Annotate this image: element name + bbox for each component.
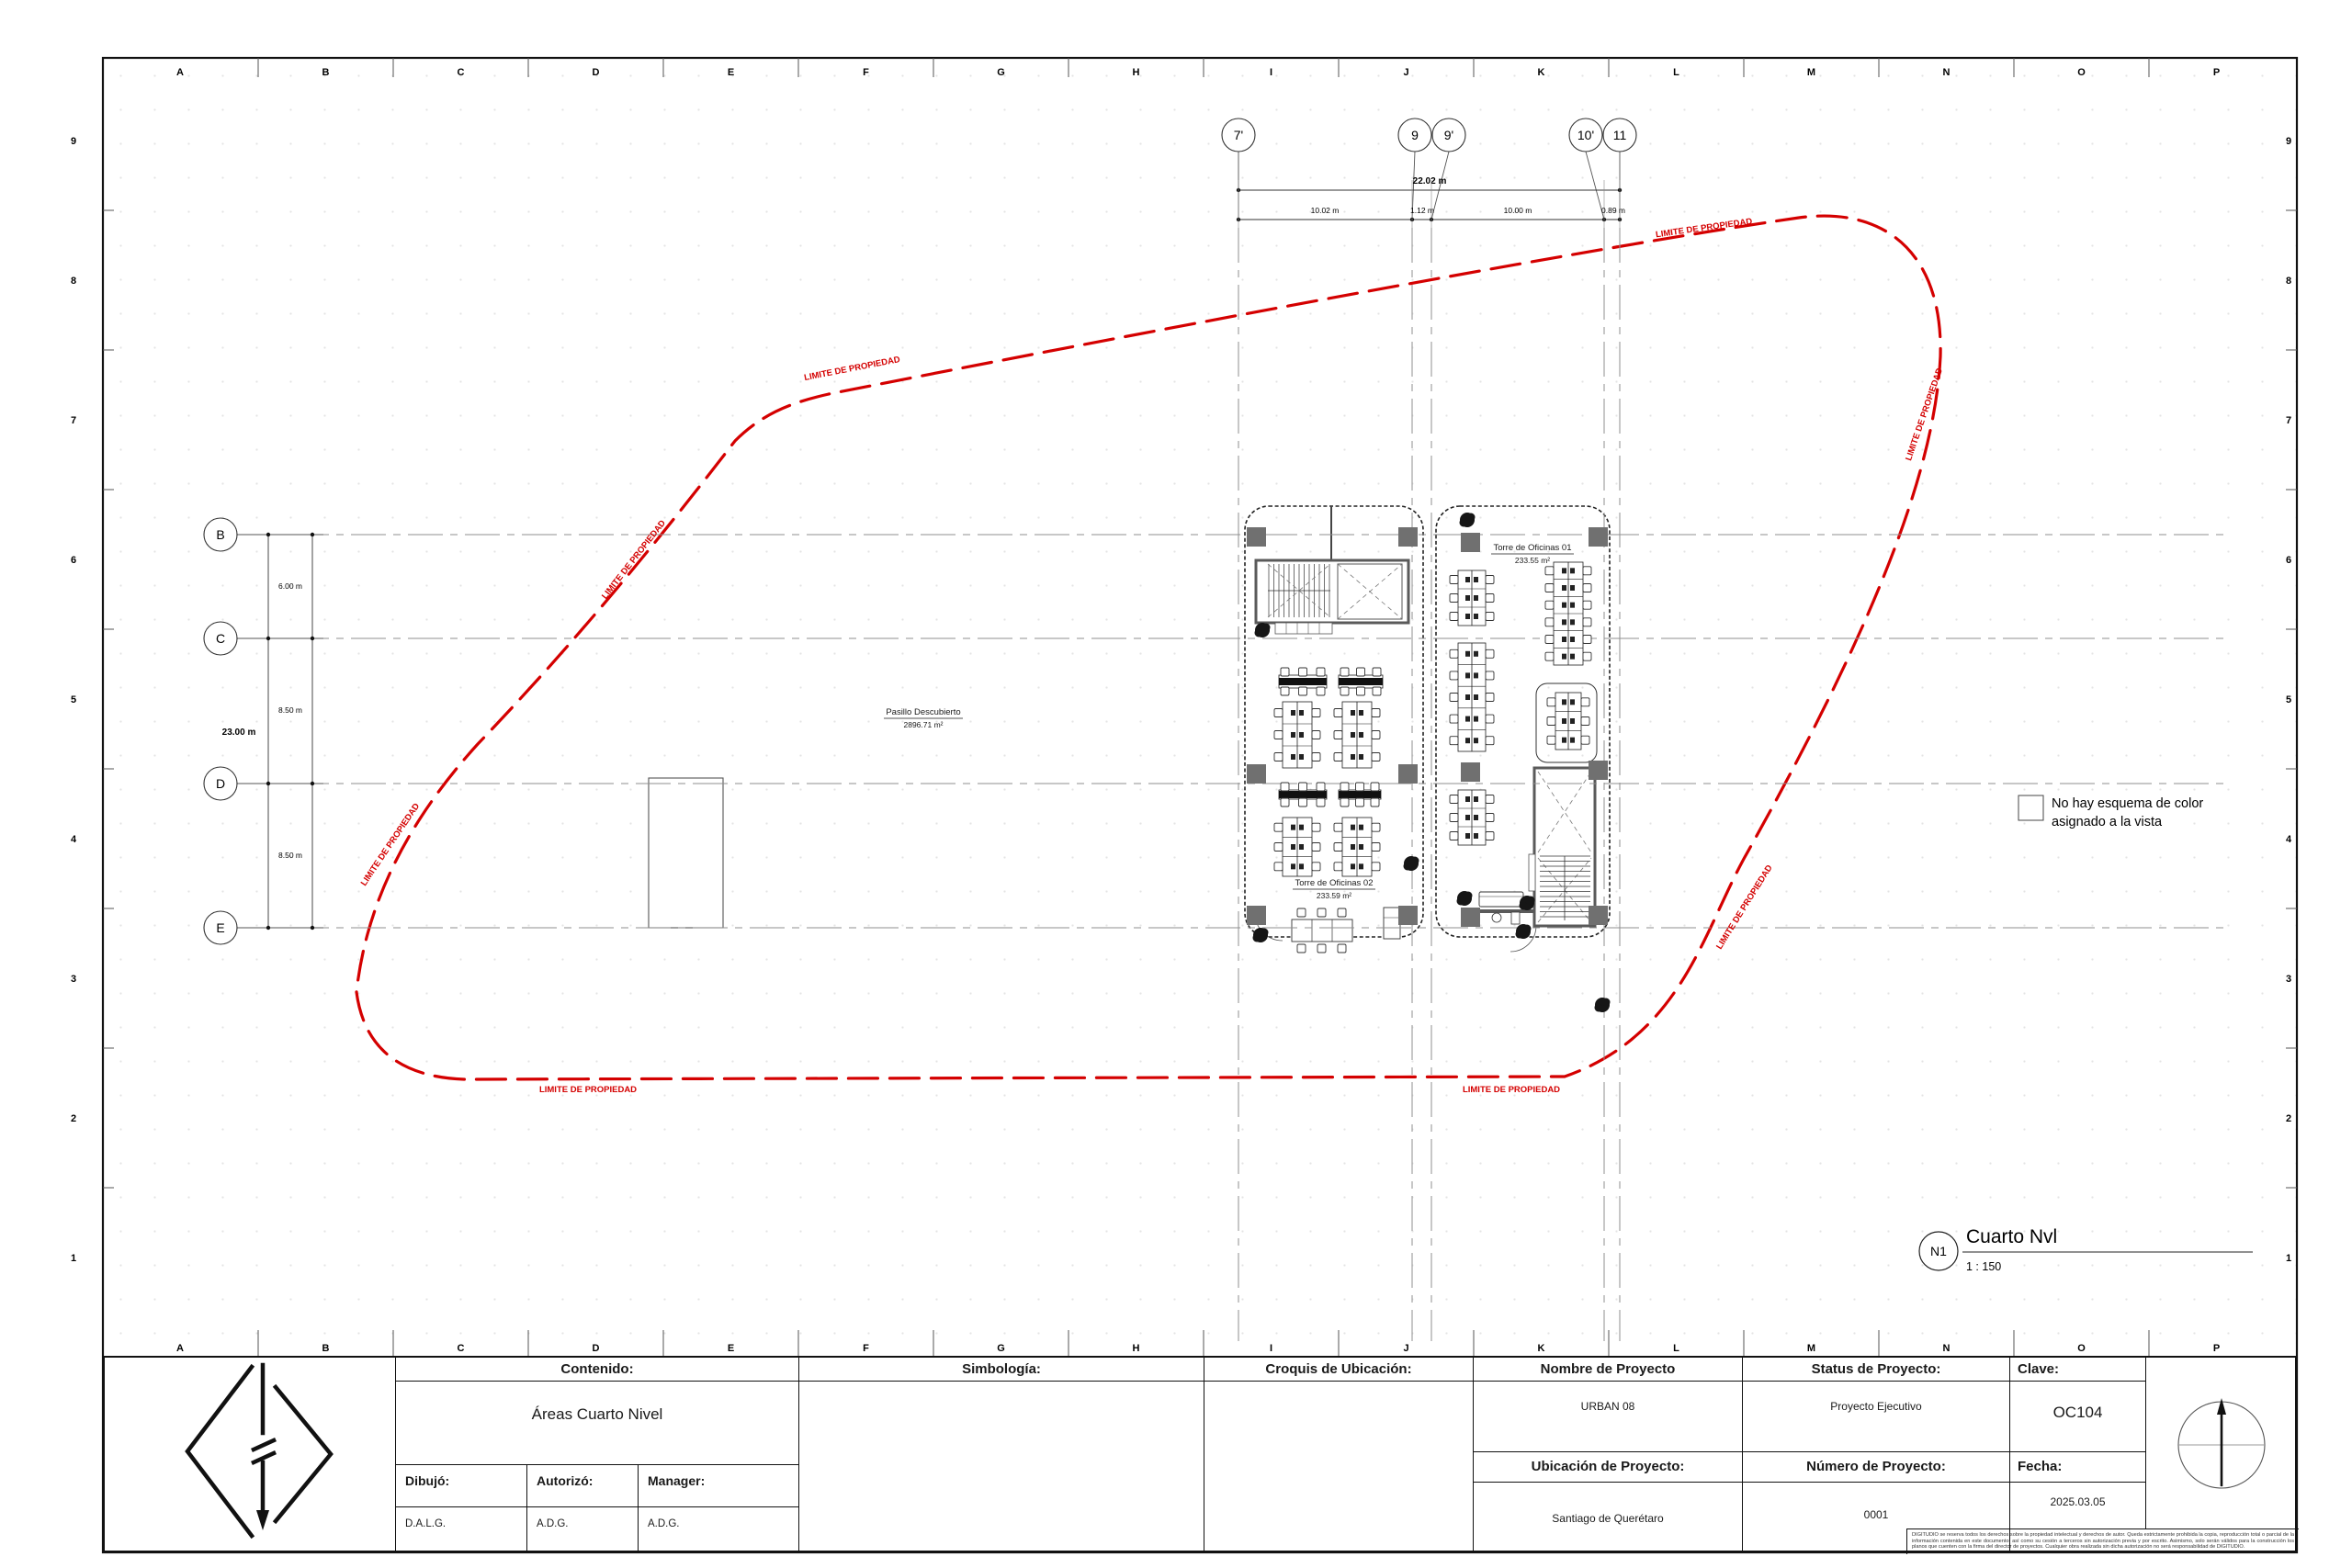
grid-bubble-label: 9' [1444, 128, 1453, 142]
dimension-text: 10.00 m [1504, 206, 1532, 215]
desk-cluster [1545, 562, 1591, 665]
desk-cluster [1274, 818, 1320, 876]
ruler-row-number: 8 [71, 276, 76, 287]
ruler-column-letter: L [1673, 1343, 1679, 1354]
desk-cluster [1339, 668, 1383, 695]
grid-bubble-label: E [216, 920, 224, 935]
dimension-text: 8.50 m [278, 851, 302, 860]
drawing-sheet: AABBCCDDEEFFGGHHIIJJKKLLMMNNOOPP99887766… [0, 0, 2352, 1568]
copyright-disclaimer: DIGITUDIO se reserva todos los derechos … [1906, 1529, 2299, 1554]
north-arrow-icon [2146, 1358, 2297, 1529]
status-label: Status de Proyecto: [1743, 1358, 2009, 1382]
grid-bubble-label: 11 [1613, 128, 1627, 142]
nombre-value: URBAN 08 [1474, 1382, 1742, 1451]
ruler-row-number: 7 [71, 415, 76, 426]
tree-icon [1516, 924, 1532, 939]
contenido-label: Contenido: [396, 1358, 798, 1382]
ruler-column-letter: J [1403, 1343, 1408, 1354]
pasillo-label: Pasillo Descubierto [886, 707, 960, 717]
ruler-row-number: 2 [2286, 1113, 2291, 1124]
desk-cluster [1334, 702, 1380, 768]
desk-cluster [1450, 570, 1494, 626]
desk-cluster [1450, 790, 1494, 845]
ruler-column-letter: G [997, 1343, 1005, 1354]
logo-cell [105, 1358, 395, 1551]
title-block: Contenido: Áreas Cuarto Nivel Dibujó: Au… [103, 1356, 2297, 1552]
structural-column [1589, 761, 1608, 780]
ruler-column-letter: B [322, 67, 330, 78]
ruler-row-number: 4 [71, 834, 77, 845]
desk-cluster [1547, 693, 1589, 750]
ruler-column-letter: A [176, 67, 184, 78]
property-limit-label: LIMITE DE PROPIEDAD [1655, 217, 1753, 241]
property-limit-label: LIMITE DE PROPIEDAD [539, 1085, 637, 1095]
ruler-row-number: 6 [71, 555, 76, 566]
desk-cluster [1339, 783, 1381, 807]
grid-bubble-label: 7' [1234, 128, 1243, 142]
dimension-text: 10.02 m [1311, 206, 1340, 215]
ruler-column-letter: K [1538, 1343, 1545, 1354]
property-limit-boundary [356, 216, 1940, 1079]
north-arrow-cell [2145, 1358, 2297, 1529]
ruler-column-letter: M [1807, 1343, 1815, 1354]
ruler-row-number: 3 [2286, 974, 2291, 985]
ruler-row-number: 9 [2286, 136, 2291, 147]
structural-column [1589, 527, 1608, 547]
croquis-label: Croquis de Ubicación: [1204, 1358, 1473, 1382]
ruler-column-letter: C [458, 67, 465, 78]
grid-bubble-label: C [216, 631, 225, 646]
ruler-column-letter: P [2213, 1343, 2220, 1354]
ruler-column-letter: B [322, 1343, 330, 1354]
ruler-column-letter: P [2213, 67, 2220, 78]
property-limit-label: LIMITE DE PROPIEDAD [1714, 863, 1775, 952]
structural-column [1398, 906, 1418, 925]
structural-column [1461, 533, 1480, 552]
ruler-column-letter: E [728, 67, 734, 78]
ruler-column-letter: K [1538, 67, 1545, 78]
tree-icon [1460, 513, 1476, 527]
ruler-column-letter: C [458, 1343, 465, 1354]
structure-outline [649, 778, 723, 928]
ubicacion-label: Ubicación de Proyecto: [1474, 1451, 1742, 1483]
dimension-text: 6.00 m [278, 581, 302, 591]
tree-icon [1253, 928, 1269, 942]
ubicacion-value: Santiago de Querétaro [1474, 1483, 1742, 1552]
grid-bubble-label: 9 [1411, 128, 1419, 142]
ruler-column-letter: E [728, 1343, 734, 1354]
desk-cluster [1334, 818, 1380, 876]
ruler-row-number: 7 [2286, 415, 2291, 426]
structural-column [1247, 764, 1266, 784]
ruler-row-number: 5 [71, 694, 76, 705]
tree-icon [1457, 891, 1473, 906]
nombre-label: Nombre de Proyecto [1474, 1358, 1742, 1382]
clave-value: OC104 [2010, 1382, 2145, 1451]
ruler-row-number: 3 [71, 974, 76, 985]
ruler-column-letter: O [2077, 67, 2086, 78]
contenido-cell: Contenido: Áreas Cuarto Nivel Dibujó: Au… [395, 1358, 798, 1551]
clave-cell: Clave: OC104 Fecha: 2025.03.05 [2009, 1358, 2145, 1551]
structural-column [1589, 906, 1608, 925]
view-tag: N1 [1930, 1244, 1947, 1258]
legend-swatch [2018, 795, 2043, 820]
property-limit-label: LIMITE DE PROPIEDAD [1904, 367, 1945, 462]
ruler-row-number: 8 [2286, 276, 2291, 287]
ruler-row-number: 2 [71, 1113, 76, 1124]
property-limit-label: LIMITE DE PROPIEDAD [1463, 1085, 1560, 1095]
ruler-column-letter: A [176, 1343, 184, 1354]
autorizo-label: Autorizó: [526, 1465, 638, 1506]
grid-bubble-label: 10' [1577, 128, 1594, 142]
property-limit-label: LIMITE DE PROPIEDAD [600, 518, 668, 601]
stair-core-tower-01 [1529, 768, 1595, 926]
desk-cluster [1450, 643, 1494, 751]
desk-cluster [1274, 702, 1320, 768]
ruler-column-letter: H [1133, 1343, 1140, 1354]
torre-01-label: Torre de Oficinas 01 [1493, 543, 1571, 553]
clave-label: Clave: [2010, 1358, 2145, 1382]
torre-02-label: Torre de Oficinas 02 [1295, 878, 1373, 888]
dibujo-label: Dibujó: [396, 1465, 526, 1506]
structural-column [1461, 762, 1480, 782]
structural-column [1398, 527, 1418, 547]
structural-column [1461, 908, 1480, 927]
ruler-column-letter: N [1943, 1343, 1951, 1354]
legend-text-line2: asignado a la vista [2052, 815, 2163, 829]
ruler-row-number: 9 [71, 136, 76, 147]
status-proyecto-cell: Status de Proyecto: Proyecto Ejecutivo N… [1742, 1358, 2009, 1551]
ruler-column-letter: L [1673, 67, 1679, 78]
autorizo-value: A.D.G. [526, 1507, 638, 1552]
tree-icon [1595, 998, 1611, 1012]
ruler-column-letter: G [997, 67, 1005, 78]
ruler-row-number: 6 [2286, 555, 2291, 566]
dimension-text: 0.89 m [1601, 206, 1625, 215]
meeting-area-tower-02 [1255, 908, 1400, 953]
view-title: N1 Cuarto Nvl 1 : 150 [1919, 1226, 2253, 1273]
ruler-column-letter: J [1403, 67, 1408, 78]
color-scheme-note: No hay esquema de color asignado a la vi… [2018, 795, 2203, 829]
structural-column [1247, 906, 1266, 925]
ruler-column-letter: I [1270, 67, 1272, 78]
sheet-border [103, 58, 2297, 1552]
torre-01-area: 233.55 m² [1515, 556, 1550, 565]
ruler-column-letter: D [593, 1343, 600, 1354]
dibujo-value: D.A.L.G. [396, 1507, 526, 1552]
pasillo-area: 2896.71 m² [904, 720, 944, 729]
view-scale: 1 : 150 [1966, 1260, 2001, 1273]
structural-column [1247, 527, 1266, 547]
ruler-row-number: 1 [71, 1253, 76, 1264]
simbologia-label: Simbología: [799, 1358, 1204, 1382]
ruler-row-number: 4 [2286, 834, 2292, 845]
ruler-column-letter: F [863, 1343, 869, 1354]
nombre-proyecto-cell: Nombre de Proyecto URBAN 08 Ubicación de… [1473, 1358, 1742, 1551]
view-name: Cuarto Nvl [1966, 1226, 2057, 1247]
stair-core-tower-02 [1256, 560, 1408, 634]
ruler-column-letter: N [1943, 67, 1951, 78]
ruler-row-number: 5 [2286, 694, 2291, 705]
status-value: Proyecto Ejecutivo [1743, 1382, 2009, 1451]
dimension-text: 22.02 m [1413, 176, 1447, 186]
legend-text-line1: No hay esquema de color [2052, 796, 2203, 811]
floor-plan-canvas: AABBCCDDEEFFGGHHIIJJKKLLMMNNOOPP99887766… [0, 0, 2352, 1568]
ruler-column-letter: M [1807, 67, 1815, 78]
ruler-column-letter: I [1270, 1343, 1272, 1354]
tree-icon [1404, 856, 1419, 871]
manager-value: A.D.G. [638, 1507, 799, 1552]
grid-bubble-label: D [216, 776, 225, 791]
manager-label: Manager: [638, 1465, 799, 1506]
fecha-label: Fecha: [2010, 1451, 2145, 1483]
desk-cluster [1279, 783, 1327, 807]
ruler-column-letter: F [863, 67, 869, 78]
numero-label: Número de Proyecto: [1743, 1451, 2009, 1483]
structural-column [1398, 764, 1418, 784]
property-limit-label: LIMITE DE PROPIEDAD [803, 355, 900, 383]
dimension-text: 23.00 m [222, 728, 256, 738]
dimension-text: 8.50 m [278, 705, 302, 715]
torre-02-area: 233.59 m² [1317, 891, 1351, 900]
contenido-value: Áreas Cuarto Nivel [396, 1382, 798, 1464]
croquis-cell: Croquis de Ubicación: [1204, 1358, 1473, 1551]
company-logo [105, 1358, 395, 1551]
ruler-column-letter: D [593, 67, 600, 78]
grid-bubble-label: B [216, 527, 224, 542]
tree-icon [1255, 623, 1271, 637]
dimension-text: 1.12 m [1410, 206, 1434, 215]
fecha-value: 2025.03.05 [2010, 1483, 2145, 1529]
ruler-column-letter: H [1133, 67, 1140, 78]
ruler-row-number: 1 [2286, 1253, 2291, 1264]
simbologia-cell: Simbología: [798, 1358, 1204, 1551]
desk-cluster [1279, 668, 1327, 695]
ruler-column-letter: O [2077, 1343, 2086, 1354]
